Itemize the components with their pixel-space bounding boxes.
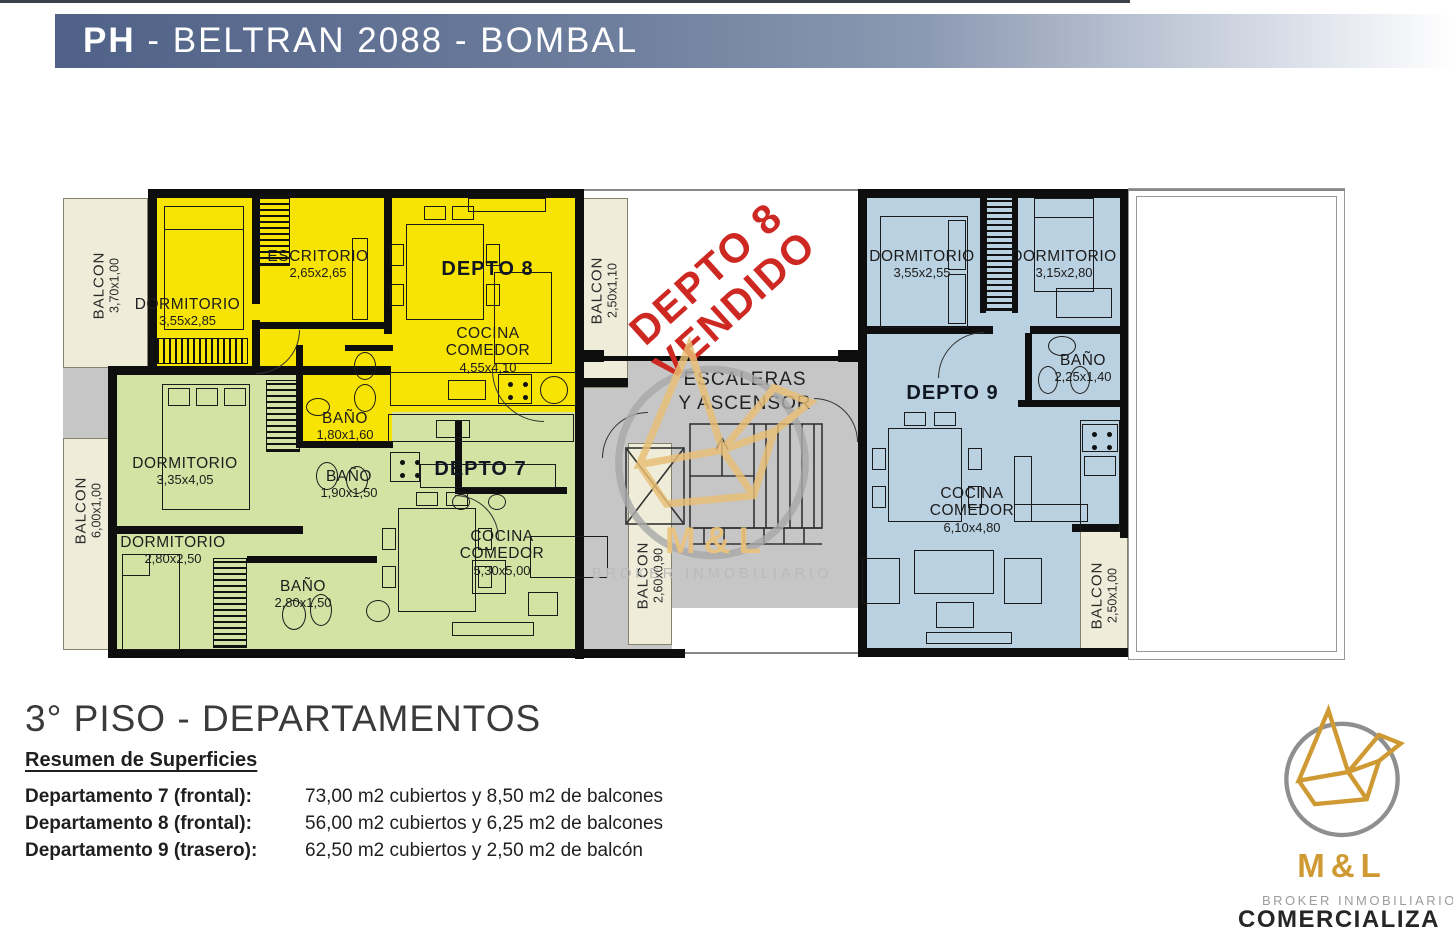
furniture (452, 622, 534, 636)
room-label-dorm1-9: DORMITORIO 3,55x2,55 (866, 248, 978, 281)
hatched-wall (150, 338, 248, 364)
room-label-bano2-7: BAÑO 2,80x1,50 (246, 578, 360, 611)
watermark-name: M&L (632, 520, 802, 562)
balcony-label-depto-9: BALCON2,50x1,00 (1080, 540, 1128, 650)
wall (148, 189, 584, 198)
room-label-bano-8: BAÑO 1,80x1,60 (298, 410, 392, 443)
wall (345, 345, 393, 351)
logo-name: M&L (1262, 847, 1422, 885)
floor-plan-page: PH - BELTRAN 2088 - BOMBAL (0, 0, 1453, 950)
furniture (366, 600, 390, 622)
furniture (1056, 288, 1112, 318)
furniture (872, 486, 886, 508)
wall (455, 487, 567, 494)
room-label-dorm2-7: DORMITORIO 2,80x2,50 (116, 534, 230, 567)
furniture (424, 206, 446, 220)
furniture (968, 448, 982, 470)
furniture (388, 414, 574, 442)
wall (1025, 333, 1032, 405)
furniture (914, 550, 994, 594)
furniture (872, 448, 886, 470)
room-label-bano1-7: BAÑO 1,90x1,50 (306, 468, 392, 501)
furniture (540, 376, 568, 404)
furniture (390, 284, 404, 306)
furniture (528, 592, 558, 616)
surfaces-subtitle: Resumen de Superficies (25, 749, 257, 772)
surface-row-depto9: Departamento 9 (trasero):62,50 m2 cubier… (25, 840, 643, 862)
room-label-bano-9: BAÑO 2,25x1,40 (1038, 352, 1128, 385)
furniture (936, 602, 974, 628)
header-bar: PH - BELTRAN 2088 - BOMBAL (55, 14, 1453, 68)
apartment-label-depto-9: DEPTO 9 (890, 382, 1015, 405)
furniture (1082, 424, 1118, 452)
wall (247, 556, 377, 563)
wall (108, 649, 685, 658)
furniture (448, 380, 486, 400)
furniture (468, 198, 546, 212)
furniture (354, 352, 376, 380)
wall (1030, 326, 1128, 334)
room-label-dorm2-9: DORMITORIO 3,15x2,80 (1008, 248, 1120, 281)
room-label-cocina-7: COCINA COMEDOR 5,30x5,00 (442, 528, 562, 578)
room-label-cocina-8: COCINA COMEDOR 4,55x4,10 (428, 325, 548, 375)
surface-row-depto8: Departamento 8 (frontal):56,00 m2 cubier… (25, 813, 663, 835)
wall (1018, 400, 1128, 407)
furniture (416, 492, 438, 506)
furniture (382, 566, 396, 588)
furniture (354, 384, 376, 412)
apartment-label-depto-8: DEPTO 8 (425, 258, 550, 281)
furniture (904, 412, 926, 426)
furniture (382, 528, 396, 550)
room-label-dorm1-7: DORMITORIO 3,35x4,05 (126, 455, 244, 488)
furniture (390, 244, 404, 266)
wall (256, 322, 388, 329)
watermark-subtitle: BROKER INMOBILIARIO (592, 566, 832, 582)
furniture (168, 388, 190, 406)
header-brand: PH (83, 21, 136, 61)
room-label-escritorio: ESCRITORIO 2,65x2,65 (262, 248, 374, 281)
logo-bird-icon (1272, 704, 1412, 840)
balcony-label-left-bottom: BALCON6,00x1,00 (60, 450, 116, 570)
furniture (934, 412, 956, 426)
top-rule (0, 0, 1130, 3)
furniture (1004, 558, 1042, 604)
floor-title: 3° PISO - DEPARTAMENTOS (25, 698, 541, 740)
hatched-wall (213, 558, 247, 648)
apartment-label-depto-7: DEPTO 7 (418, 458, 543, 481)
wall (108, 526, 303, 534)
broker-logo: M&L BROKER INMOBILIARIO (1262, 704, 1422, 908)
furniture (196, 388, 218, 406)
furniture (390, 452, 420, 482)
furniture (164, 206, 244, 230)
room-label-cocina-9: COCINA COMEDOR 6,10x4,80 (912, 485, 1032, 535)
logo-tagline: COMERCIALIZA (1238, 906, 1438, 934)
wall (108, 366, 391, 375)
furniture (948, 274, 966, 324)
furniture (862, 558, 900, 604)
terrace-outline-inner (1136, 196, 1337, 652)
furniture (1084, 456, 1116, 476)
furniture (926, 632, 1012, 644)
furniture (488, 494, 506, 510)
furniture (224, 388, 246, 406)
hatched-wall (266, 380, 300, 452)
page-title: - BELTRAN 2088 - BOMBAL (136, 21, 639, 61)
furniture (436, 420, 470, 438)
furniture (1034, 198, 1094, 218)
surface-row-depto7: Departamento 7 (frontal):73,00 m2 cubier… (25, 786, 663, 808)
balcony-label-left-top: BALCON3,70x1,00 (63, 230, 148, 340)
